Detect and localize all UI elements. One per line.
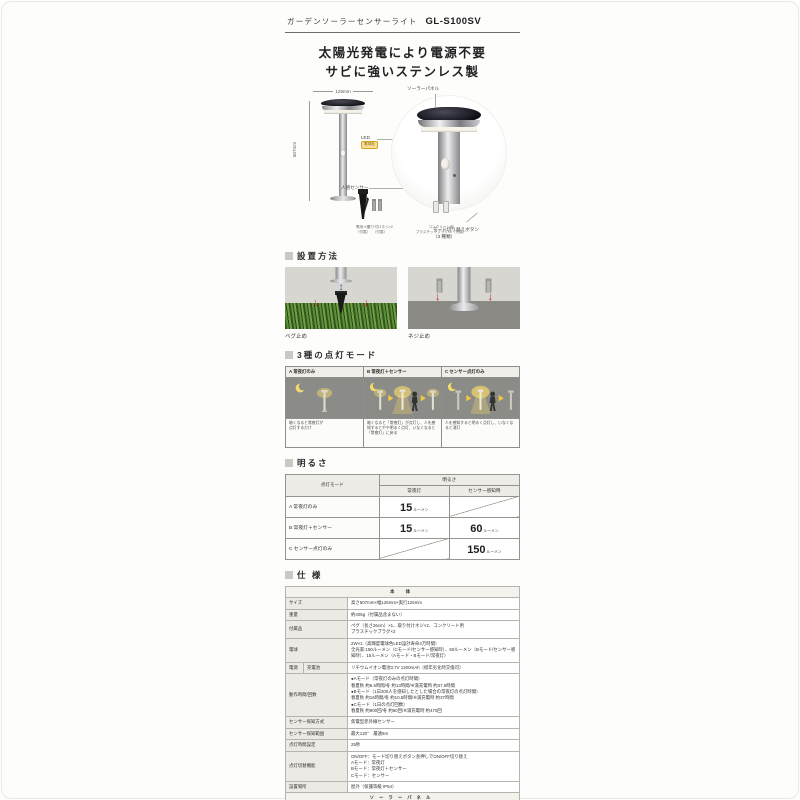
lamp-icon (430, 390, 436, 392)
mode-a-description: 暗くなると常夜灯が 点灯するだけ (286, 418, 364, 447)
table-row: B 常夜灯＋センサー 15ルーメン 60ルーメン (286, 517, 520, 538)
table-row: センサー探知方式 焦電型赤外線センサー (286, 717, 520, 728)
arrow-icon (388, 395, 393, 401)
specs-section-title: 仕 様 (285, 569, 520, 581)
mode-c-header: C センサー点灯のみ (442, 366, 520, 377)
brightness-row-a-sensor-na (449, 496, 519, 517)
brightness-table: 点灯モード 明るさ 常夜灯 センサー感知時 A 常夜灯のみ 15ルーメン B 常… (285, 474, 520, 560)
section-bullet (285, 252, 293, 260)
lamp-icon (478, 389, 484, 391)
mode-c-description: 人を感知すると明るく点灯し、いなくなると消灯 (442, 418, 520, 447)
peg-icon (355, 189, 371, 223)
specs-solar-header: ソーラーパネル (286, 793, 520, 800)
rim-closeup (418, 120, 480, 127)
installation-section-title: 設置方法 (285, 250, 520, 262)
led-color-badge: 電球色 (361, 141, 378, 149)
pole (339, 114, 347, 196)
solar-cap (321, 99, 365, 106)
accessory-screws-label: 取り付けネジ×2 （付属） (359, 225, 401, 236)
table-row: 点灯切替機能 ON/OFF：モード切り替えボタン長押しでON/OFF切り替え A… (286, 751, 520, 782)
pole-closeup (438, 132, 460, 204)
table-row: C センサー点灯のみ 150ルーメン (286, 538, 520, 559)
battery-label: 充電池 (304, 662, 348, 673)
installation-images: ↕ ↓ ↓ ↓ ↓ (285, 267, 520, 329)
table-row: A 常夜灯のみ 15ルーメン (286, 496, 520, 517)
brightness-col-night: 常夜灯 (379, 485, 449, 496)
table-row: サイズ 高さ507mm×幅126mm×奥行126mm (286, 598, 520, 609)
brightness-col-group: 明るさ (379, 474, 519, 485)
brightness-section-title: 明るさ (285, 457, 520, 469)
product-diagram: 126mm 507mm LED 電球色 人感センサー (285, 89, 520, 241)
mode-c-illustration (442, 378, 519, 418)
motion-sensor-dot (341, 150, 345, 156)
mode-a-header: A 常夜灯のみ (286, 366, 364, 377)
mode-b-header: B 常夜灯＋センサー (364, 366, 442, 377)
specs-table: 本 体 サイズ 高さ507mm×幅126mm×奥行126mm 重量 約405g（… (285, 586, 520, 800)
pole-base (330, 196, 356, 201)
table-row: 重量 約405g（付属品含まない） (286, 609, 520, 620)
brightness-row-b-sensor: 60ルーメン (449, 517, 519, 538)
person-icon (490, 391, 496, 410)
mode-c-graphic (442, 377, 520, 418)
dimension-line (313, 91, 333, 92)
lamp-icon (377, 390, 383, 392)
product-type-label: ガーデンソーラーセンサーライト (287, 16, 418, 27)
table-row: センサー探知範囲 最大120° 最遠6m (286, 728, 520, 739)
product-info-sheet: ガーデンソーラーセンサーライト GL-S100SV 太陽光発電により電源不要 サ… (0, 0, 800, 800)
down-arrow-icon: ↓ (488, 291, 494, 303)
accessory-plugs-label: コンクリート用 プラスチックプラグ×2（付属） (409, 225, 473, 236)
mode-button-dot (453, 174, 456, 177)
arrow-icon (421, 395, 426, 401)
height-dimension-label: 507mm (292, 142, 297, 157)
dimension-line (353, 91, 373, 92)
arrow-icon (499, 395, 504, 401)
closeup-circle (391, 95, 507, 211)
section-bullet (285, 459, 293, 467)
lamp-icon (455, 390, 461, 392)
power-label: 電源 (286, 662, 304, 673)
brightness-row-a-mode: A 常夜灯のみ (286, 496, 380, 517)
brightness-row-c-night-na (379, 538, 449, 559)
lamp-head-closeup (417, 107, 481, 204)
peg-install-image: ↕ ↓ ↓ (285, 267, 397, 329)
table-row: 付属品 ペグ（長さ26cm）×1、取り付けネジ×2、コンクリート用 プラスチック… (286, 620, 520, 638)
down-arrow-icon: ↓ (364, 297, 370, 309)
brightness-row-c-mode: C センサー点灯のみ (286, 538, 380, 559)
mode-a-illustration (286, 378, 363, 418)
content-column: ガーデンソーラーセンサーライト GL-S100SV 太陽光発電により電源不要 サ… (285, 16, 520, 800)
leader-line (435, 94, 436, 108)
headline-line2: サビに強いステンレス製 (285, 63, 520, 82)
plugs-icon (433, 201, 449, 213)
height-dimension-line (309, 101, 310, 201)
section-bullet (285, 351, 293, 359)
lamp-icon (400, 389, 406, 391)
screw-caption: ネジ止め (408, 332, 520, 340)
specs-body-header: 本 体 (286, 586, 520, 597)
modes-section-title: 3種の点灯モード (285, 349, 520, 361)
brightness-row-b-night: 15ルーメン (379, 517, 449, 538)
width-dimension-label: 126mm (335, 89, 350, 94)
model-number: GL-S100SV (426, 16, 482, 27)
modes-table: A 常夜灯のみ B 常夜灯＋センサー C センサー点灯のみ (285, 366, 520, 448)
installation-captions: ペグ止め ネジ止め (285, 332, 520, 340)
table-row: 設置場所 屋外（保護等級 IP54） (286, 782, 520, 793)
brightness-row-b-mode: B 常夜灯＋センサー (286, 517, 380, 538)
lamp-icon (508, 390, 514, 392)
peg-shape (336, 293, 346, 315)
brightness-col-mode: 点灯モード (286, 474, 380, 496)
brightness-row-c-sensor: 150ルーメン (449, 538, 519, 559)
section-bullet (285, 571, 293, 579)
width-dimension: 126mm (313, 89, 373, 94)
mode-b-description: 暗くなると「常夜灯」が点灯し、人を感知するとやや明るく点灯、いなくなると「常夜灯… (364, 418, 442, 447)
person-icon (412, 391, 418, 410)
table-row: 電源 充電池 リチウムイオン電池3.7V 1200mAh（経年劣化時交換可） (286, 662, 520, 673)
lamp-icon (321, 390, 327, 393)
table-row: 動作時間/回数 ●Aモード（常夜灯のみの点灯時間） 春夏秋 約6.5時間/冬 約… (286, 674, 520, 717)
solar-panel-label: ソーラーパネル (407, 86, 439, 92)
mode-b-graphic (364, 377, 442, 418)
screws-icon (373, 201, 381, 211)
peg-caption: ペグ止め (285, 332, 397, 340)
screw-install-image: ↓ ↓ (408, 267, 520, 329)
brightness-row-a-night: 15ルーメン (379, 496, 449, 517)
mode-a-graphic (286, 377, 364, 418)
brightness-col-sensor: センサー感知時 (449, 485, 519, 496)
down-arrow-icon: ↓ (435, 291, 441, 303)
table-row: 点灯時間設定 25秒 (286, 740, 520, 751)
led-label: LED 電球色 (361, 135, 378, 149)
arrow-icon (466, 395, 471, 401)
leader-line (466, 212, 477, 222)
headline-line1: 太陽光発電により電源不要 (285, 44, 520, 63)
headline: 太陽光発電により電源不要 サビに強いステンレス製 (285, 44, 520, 83)
battery-value: リチウムイオン電池3.7V 1200mAh（経年劣化時交換可） (348, 662, 520, 673)
sensor-closeup (441, 158, 450, 170)
header: ガーデンソーラーセンサーライト GL-S100SV (285, 16, 520, 33)
table-row: 電球 2W×1（高輝度電球色LED設計寿命4万時間） 全光束:150ルーメン（C… (286, 638, 520, 662)
down-arrow-icon: ↓ (313, 297, 319, 309)
mode-b-illustration (364, 378, 441, 418)
